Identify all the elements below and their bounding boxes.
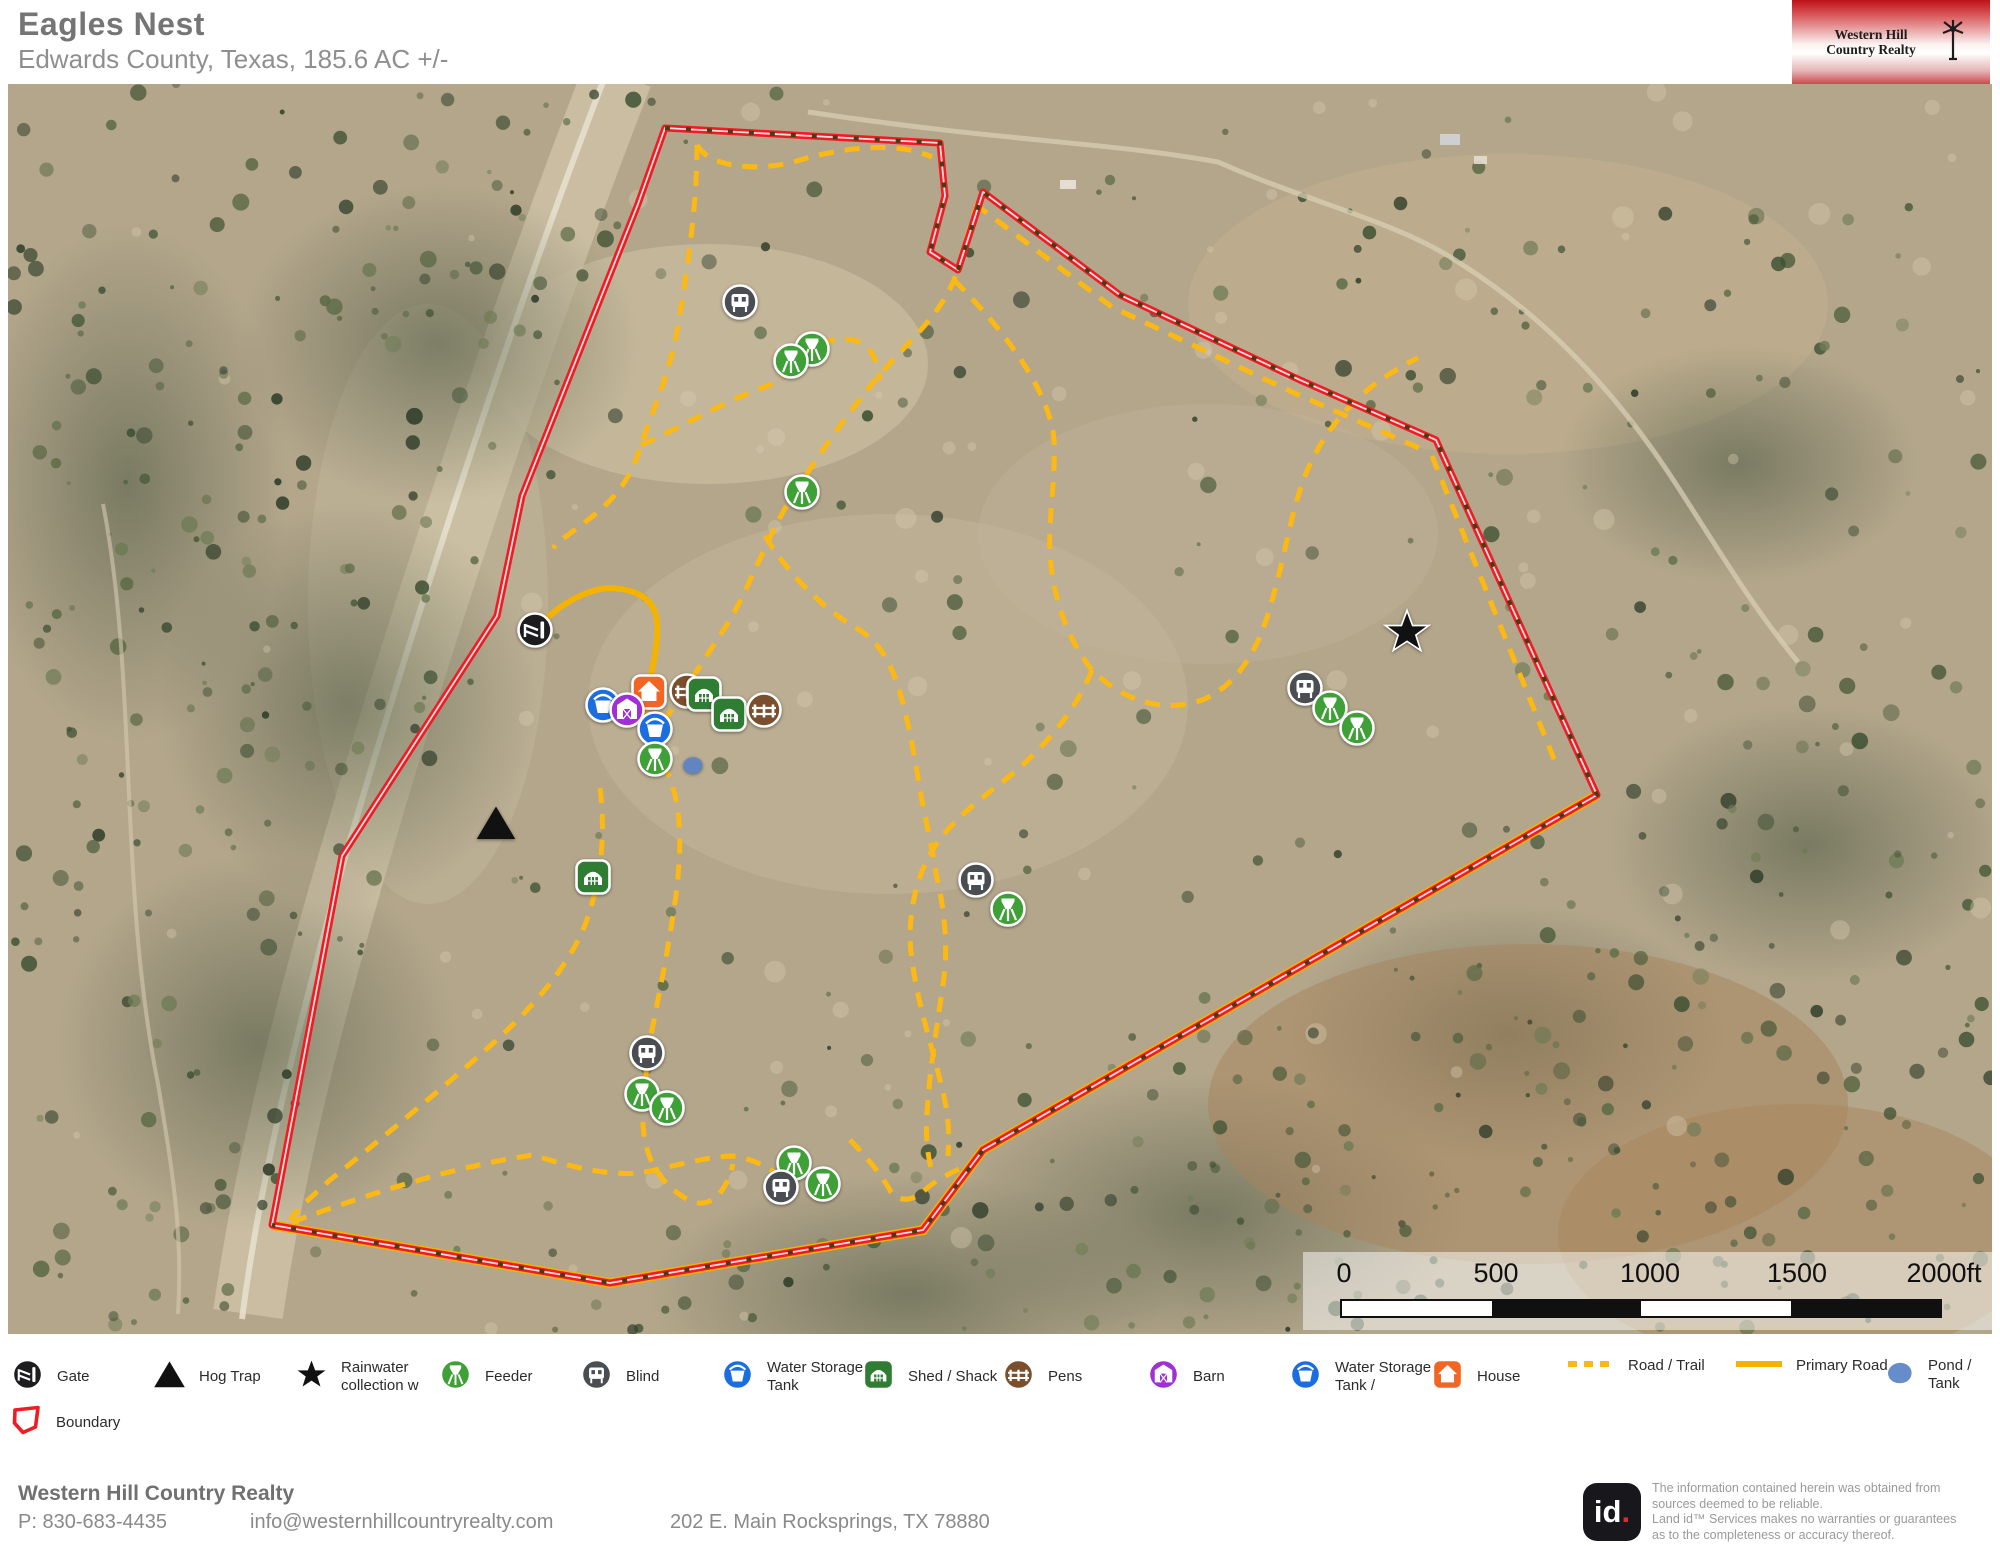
gate-icon (10, 1357, 45, 1397)
marker-star (1383, 608, 1431, 656)
scale-tick: 2000ft (1906, 1258, 1981, 1289)
legend-item-water-storage-tank: Water Storage Tank / (1288, 1357, 1441, 1397)
pond-icon (1884, 1359, 1916, 1391)
land-id-logo: id. (1583, 1483, 1641, 1541)
legend-label: Hog Trap (199, 1368, 261, 1386)
scale-bar: 0 500 1000 1500 2000ft (1303, 1252, 1992, 1330)
legend-item-primary-road: Primary Road (1734, 1357, 1888, 1375)
legend-label: Shed / Shack (908, 1368, 997, 1386)
marker-blind (627, 1033, 667, 1073)
legend-label: Primary Road (1796, 1357, 1888, 1375)
marker-feeder (647, 1088, 687, 1128)
disclaimer-text: The information contained herein was obt… (1652, 1481, 1992, 1543)
legend-label: Rainwater collection w (341, 1359, 447, 1395)
marker-feeder (771, 341, 811, 381)
marker-blind (720, 282, 760, 322)
legend-item-shed-shack: Shed / Shack (861, 1357, 997, 1397)
map-legend: GateHog TrapRainwater collection w Feede… (0, 1345, 2000, 1460)
scale-tick: 500 (1473, 1258, 1518, 1289)
marker-pond (680, 754, 706, 776)
legend-label: Feeder (485, 1368, 533, 1386)
legend-label: Water Storage Tank / (1335, 1359, 1441, 1395)
scale-tick: 0 (1336, 1258, 1351, 1289)
legend-item-rainwater-collection-w: Rainwater collection w (294, 1357, 447, 1397)
tank-icon (1288, 1357, 1323, 1397)
house-icon (1430, 1357, 1465, 1397)
marker-gate (515, 610, 555, 650)
page-title: Eagles Nest (18, 6, 205, 43)
marker-feeder (782, 472, 822, 512)
legend-label: House (1477, 1368, 1520, 1386)
tank-icon (720, 1357, 755, 1397)
legend-label: Water Storage Tank (767, 1359, 873, 1395)
legend-label: Gate (57, 1368, 90, 1386)
legend-item-pens: Pens (1001, 1357, 1082, 1397)
marker-shed (573, 857, 613, 897)
legend-item-feeder: Feeder (438, 1357, 533, 1397)
primary-icon (1734, 1357, 1784, 1375)
marker-blind (761, 1167, 801, 1207)
legend-label: Barn (1193, 1368, 1225, 1386)
shed-icon (861, 1357, 896, 1397)
legend-item-gate: Gate (10, 1357, 90, 1397)
aerial-map: 0 500 1000 1500 2000ft (8, 84, 1992, 1334)
hogtrap-icon (152, 1357, 187, 1397)
marker-feeder (1337, 708, 1377, 748)
marker-hogtrap (474, 801, 518, 845)
marker-pens (744, 690, 784, 730)
scale-tick: 1500 (1767, 1258, 1827, 1289)
road-icon (1566, 1357, 1616, 1375)
realty-logo-text: Western Hill Country Realty (1812, 28, 1930, 58)
legend-label: Blind (626, 1368, 659, 1386)
legend-item-road-trail: Road / Trail (1566, 1357, 1705, 1375)
legend-item-boundary: Boundary (10, 1403, 120, 1442)
footer-email: info@westernhillcountryrealty.com (250, 1511, 553, 1534)
pens-icon (1001, 1357, 1036, 1397)
legend-item-hog-trap: Hog Trap (152, 1357, 261, 1397)
legend-item-barn: Barn (1146, 1357, 1225, 1397)
star-icon (294, 1357, 329, 1397)
legend-label: Pens (1048, 1368, 1082, 1386)
blind-icon (579, 1357, 614, 1397)
scale-bar-segments (1340, 1299, 1942, 1318)
satellite-terrain (8, 84, 1992, 1334)
windmill-icon (1936, 19, 1970, 68)
legend-item-blind: Blind (579, 1357, 659, 1397)
legend-label: Road / Trail (1628, 1357, 1705, 1375)
boundary-icon (10, 1403, 44, 1442)
page-subtitle: Edwards County, Texas, 185.6 AC +/- (18, 44, 448, 75)
footer-address: 202 E. Main Rocksprings, TX 78880 (670, 1511, 990, 1534)
scale-tick: 1000 (1620, 1258, 1680, 1289)
property-map-page: Eagles Nest Edwards County, Texas, 185.6… (0, 0, 2000, 1546)
legend-label: Boundary (56, 1414, 120, 1432)
realty-logo: Western Hill Country Realty (1792, 0, 1990, 86)
feeder-icon (438, 1357, 473, 1397)
barn-icon (1146, 1357, 1181, 1397)
marker-feeder (803, 1164, 843, 1204)
legend-item-house: House (1430, 1357, 1520, 1397)
marker-feeder (635, 739, 675, 779)
legend-item-water-storage-tank: Water Storage Tank (720, 1357, 873, 1397)
marker-shed (709, 694, 749, 734)
legend-label: Pond / Tank (1928, 1357, 2000, 1393)
footer-phone: P: 830-683-4435 (18, 1511, 167, 1534)
marker-feeder (988, 889, 1028, 929)
legend-item-pond-tank: Pond / Tank (1884, 1357, 2000, 1393)
footer-company: Western Hill Country Realty (18, 1482, 294, 1506)
